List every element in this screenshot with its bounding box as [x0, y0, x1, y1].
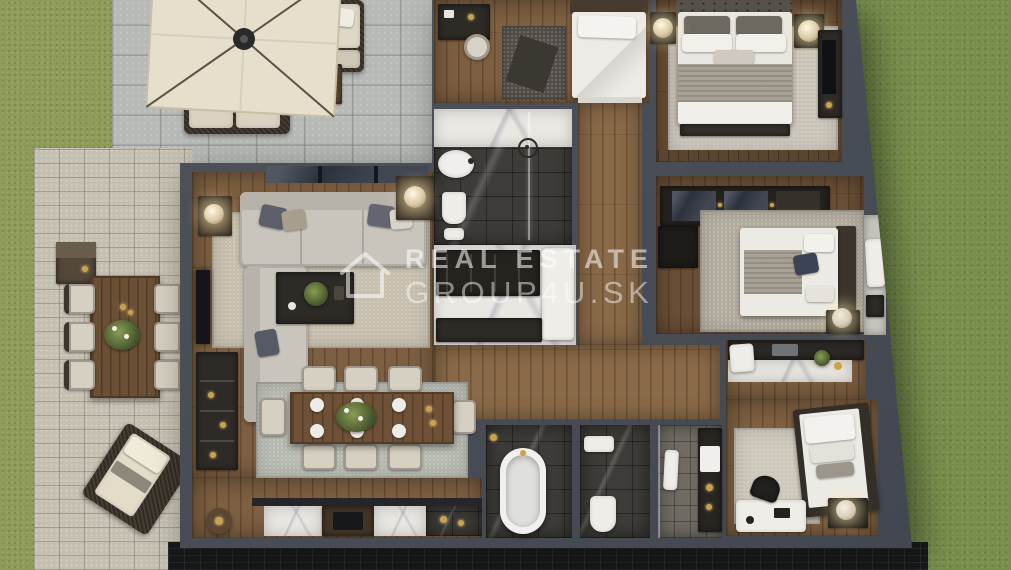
building-walls: [180, 0, 912, 548]
bottle: [220, 422, 226, 428]
hallway-floor: [434, 345, 720, 420]
wardrobe-handle: [718, 203, 722, 207]
kitchen-decor: [458, 520, 464, 526]
table-lamp: [204, 204, 224, 224]
vanity-lamp: [834, 362, 842, 370]
outdoor-chair: [64, 284, 95, 314]
toilet: [590, 496, 616, 532]
vanity-plant: [814, 350, 830, 366]
desk-chair: [464, 34, 490, 60]
towel: [663, 450, 679, 491]
window-mullion: [374, 166, 378, 183]
sideboard-top: [56, 242, 96, 258]
bed-pillow: [804, 234, 834, 252]
dining-chair: [260, 398, 286, 436]
candle: [128, 310, 133, 315]
window-mullion: [318, 166, 322, 183]
kitchen-cabinet-marble: [374, 506, 426, 536]
throw-pillow: [281, 208, 308, 231]
dining-chair: [344, 444, 378, 470]
round-lamp: [832, 308, 852, 328]
floor-plan-render: REAL ESTATE GROUP4U.SK: [0, 0, 1011, 570]
niche-table: [866, 295, 884, 317]
kitchen-counter-edge: [252, 498, 482, 506]
side-niche-floor: [864, 215, 886, 335]
tv-panel: [196, 270, 210, 344]
cabinet-seam: [446, 254, 448, 292]
shower-vanity: [698, 428, 722, 532]
flower: [124, 334, 129, 339]
bed-pillow: [803, 413, 855, 444]
small-bedroom-rug: [502, 26, 566, 100]
vanity-decor: [706, 484, 713, 491]
candle: [430, 420, 436, 426]
bathroom-marble-wall: [434, 109, 572, 147]
shelf: [200, 380, 234, 382]
tray: [334, 286, 344, 300]
rug-accent: [506, 35, 559, 93]
plate: [310, 398, 324, 412]
pantry-base-cabinet: [436, 318, 542, 342]
door-frame: [578, 97, 642, 103]
dining-chair: [302, 366, 336, 392]
tv-screen: [822, 40, 836, 94]
tray: [215, 517, 223, 525]
pantry-tall-cabinet: [542, 248, 574, 340]
bed-pillow: [578, 15, 637, 39]
dining-chair: [388, 366, 422, 392]
plate: [392, 398, 406, 412]
flower: [358, 416, 363, 421]
bath-decor: [490, 434, 497, 441]
bottle: [210, 452, 216, 458]
flower: [112, 326, 117, 331]
kitchen-cabinet-wood: [322, 506, 374, 536]
bedside-lamp: [653, 18, 673, 38]
master-console: [818, 30, 842, 118]
desk-lamp: [468, 14, 474, 20]
flower-centerpiece: [336, 402, 376, 432]
writing-desk: [736, 500, 806, 532]
desk-item: [444, 10, 454, 18]
shelf: [200, 440, 234, 442]
dining-chair: [302, 444, 336, 470]
faucet: [468, 158, 474, 164]
dining-chair: [452, 400, 476, 434]
bed-sheet-fold: [678, 102, 792, 124]
candle: [426, 406, 432, 412]
desk-item: [746, 516, 754, 524]
dining-chair: [388, 444, 422, 470]
bedroom2-bed: [740, 226, 860, 320]
pantry-cabinets: [436, 250, 540, 296]
accent-pillow: [714, 50, 754, 64]
wall-sink: [584, 436, 614, 452]
vanity-sink-box: [729, 343, 755, 373]
shelf: [200, 410, 234, 412]
outdoor-chair: [64, 360, 95, 390]
kitchen-sink: [333, 512, 363, 530]
flower: [344, 408, 349, 413]
cushion-seam: [362, 210, 364, 264]
chandelier-center: [525, 145, 529, 149]
round-side-table: [206, 508, 232, 534]
bed-pillow: [806, 286, 834, 302]
navy-pillow: [792, 252, 819, 276]
building: [180, 0, 912, 548]
cabinet-seam: [518, 254, 520, 292]
bed-runner: [678, 64, 792, 102]
vanity-decor: [706, 504, 712, 510]
steel-sink: [772, 344, 798, 356]
cabinet-seam: [470, 254, 472, 292]
niche-chair: [865, 239, 885, 288]
bed-bench: [680, 124, 790, 136]
bathtub-basin: [506, 455, 540, 527]
single-bed: [570, 0, 648, 100]
outdoor-dining-table: [90, 276, 160, 398]
wardrobe-handle: [770, 203, 774, 207]
candle: [120, 304, 126, 310]
bottle: [208, 392, 214, 398]
bedside-lamp: [798, 20, 820, 42]
flower-centerpiece: [104, 320, 140, 350]
kitchen-cabinet-marble: [264, 506, 322, 536]
chandelier: [518, 138, 538, 158]
sideboard-decor: [82, 266, 88, 272]
plate: [310, 424, 324, 438]
cabinet-seam: [494, 254, 496, 292]
dining-table: [290, 392, 454, 444]
bar-cabinet: [196, 352, 238, 470]
tub-faucet: [520, 450, 526, 456]
dresser: [658, 226, 698, 268]
corridor-floor: [578, 103, 642, 345]
bathroom-sink: [438, 150, 474, 178]
bed-pillow-dark: [684, 16, 730, 36]
shower-glass: [528, 112, 530, 240]
table-plant: [304, 282, 328, 306]
dining-chair: [344, 366, 378, 392]
master-bed: [678, 12, 792, 124]
coffee-table: [276, 272, 354, 324]
headboard: [836, 226, 856, 318]
throw-pillow: [254, 328, 280, 357]
table-lamp: [404, 186, 426, 208]
outdoor-chair: [64, 322, 95, 352]
shower-glass: [658, 425, 660, 538]
cup: [288, 302, 296, 310]
console-decor: [826, 102, 832, 108]
vanity-sink: [700, 446, 720, 472]
kitchen-cabinet-dark: [426, 506, 482, 536]
master-low-cabinet: [658, 150, 838, 161]
kitchen-decor: [440, 516, 447, 523]
towel: [444, 228, 464, 240]
toilet: [442, 192, 466, 224]
bed-pillow-dark: [736, 16, 782, 36]
plate: [392, 424, 406, 438]
desk-item: [774, 508, 790, 518]
bathtub: [500, 448, 546, 534]
round-lamp: [836, 500, 856, 520]
